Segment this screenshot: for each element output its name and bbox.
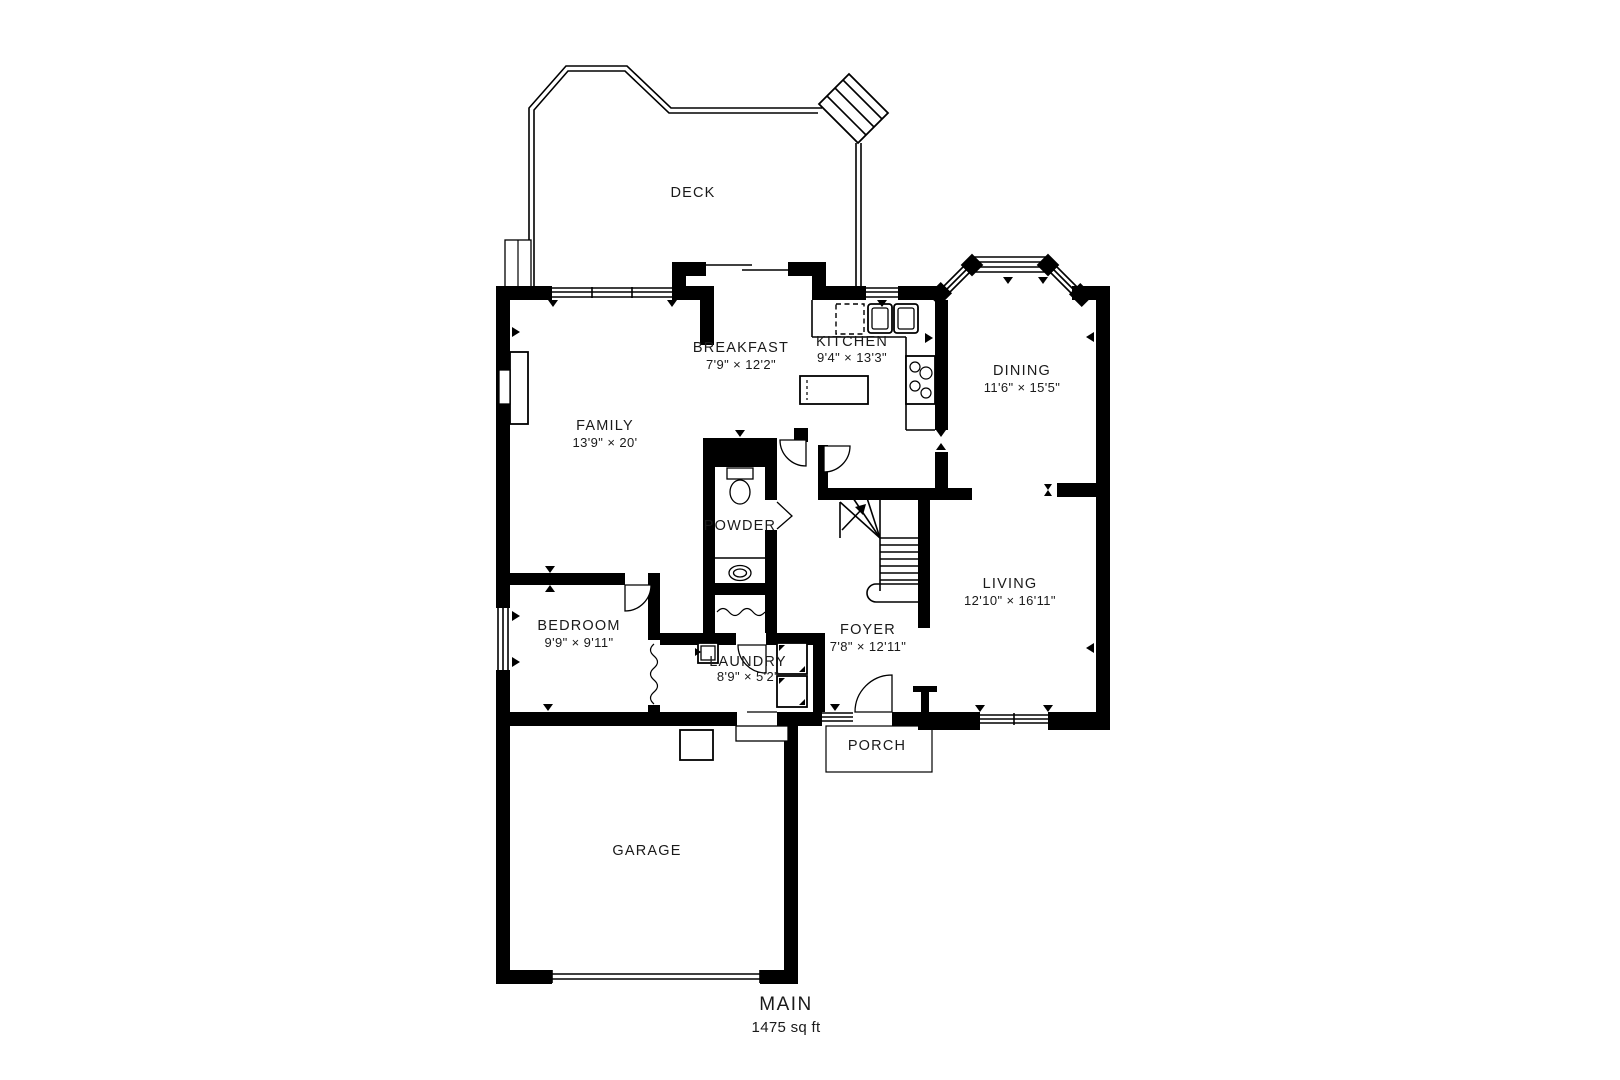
powder-label: POWDER	[704, 518, 776, 534]
foyer-label: FOYER	[840, 622, 896, 638]
stove	[906, 356, 935, 404]
powder-sink	[715, 558, 765, 581]
kitchen-island	[800, 376, 868, 404]
deck-stairs	[819, 74, 888, 143]
floor-plan-canvas: DECK FAMILY 13'9" × 20' BREAKFAST 7'9" ×…	[0, 0, 1620, 1080]
dining-dims: 11'6" × 15'5"	[984, 380, 1061, 395]
kitchen-dims: 9'4" × 13'3"	[817, 350, 887, 365]
deck-label: DECK	[670, 185, 715, 201]
powder-door	[777, 502, 792, 529]
entry-closet-door	[824, 446, 850, 472]
room-labels: DECK FAMILY 13'9" × 20' BREAKFAST 7'9" ×…	[537, 185, 1060, 859]
hall-family-door	[780, 440, 806, 466]
breakfast-label: BREAKFAST	[693, 340, 789, 356]
family-dims: 13'9" × 20'	[573, 435, 638, 450]
staircase	[840, 498, 918, 602]
kitchen-label: KITCHEN	[816, 334, 888, 350]
foyer-dims: 7'8" × 12'11"	[830, 639, 907, 654]
toilet	[727, 468, 753, 504]
bedro om-dims: 9'9" × 9'11"	[545, 635, 614, 650]
family-label: FAMILY	[576, 418, 634, 434]
garage-label: GARAGE	[612, 843, 681, 859]
laundry-dims: 8'9" × 5'2"	[717, 669, 779, 684]
bedroom-closet-rod	[651, 644, 658, 704]
kitchen-sink	[868, 304, 918, 333]
laundry-label: LAUNDRY	[709, 654, 786, 670]
porch-label: PORCH	[848, 738, 906, 754]
dining-label: DINING	[993, 363, 1051, 379]
garage-step	[736, 726, 788, 741]
washer-dryer	[777, 643, 807, 707]
front-door	[855, 675, 892, 712]
bedroom-label: BEDROOM	[537, 618, 620, 634]
floor-footer: MAIN 1475 sq ft	[752, 994, 821, 1036]
water-heater	[680, 730, 713, 760]
floor-title: MAIN	[759, 994, 813, 1015]
floor-plan-page: DECK FAMILY 13'9" × 20' BREAKFAST 7'9" ×…	[0, 0, 1620, 1080]
powder-closet-rod	[717, 609, 765, 616]
breakfast-dims: 7'9" × 12'2"	[706, 357, 776, 372]
floor-area: 1475 sq ft	[752, 1019, 821, 1036]
living-label: LIVING	[983, 576, 1038, 592]
bedroom-door	[625, 585, 651, 611]
living-dims: 12'10" × 16'11"	[964, 593, 1056, 608]
dishwasher	[836, 304, 864, 334]
